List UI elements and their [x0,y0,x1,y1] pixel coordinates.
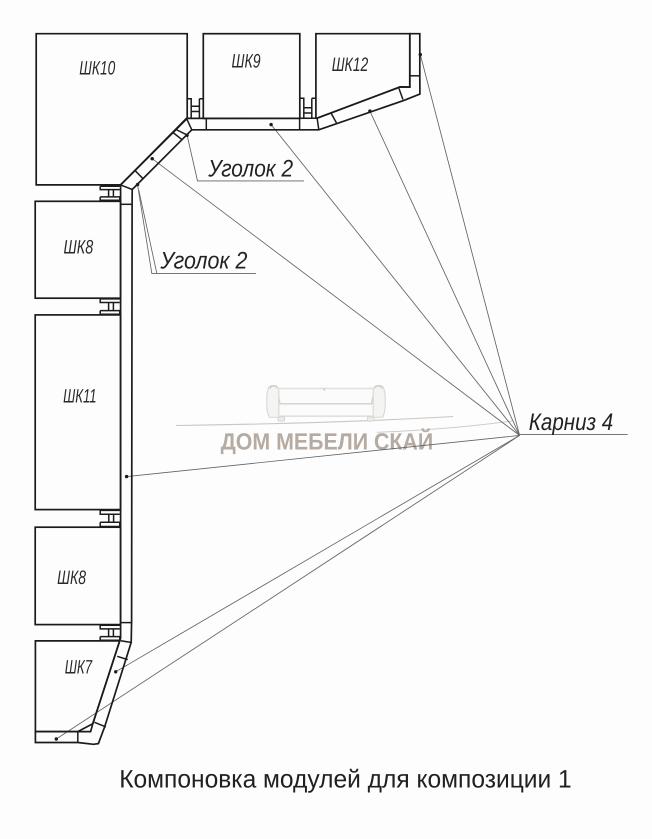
svg-text:ШК8: ШК8 [57,567,86,589]
svg-text:ШК9: ШК9 [232,50,261,72]
svg-text:Уголок 2: Уголок 2 [207,156,293,183]
svg-text:ШК10: ШК10 [79,58,115,80]
svg-text:Уголок 2: Уголок 2 [160,248,248,275]
svg-text:ШК8: ШК8 [64,237,94,259]
svg-text:ШК7: ШК7 [65,656,93,678]
svg-text:ШК12: ШК12 [332,54,369,76]
svg-text:Карниз 4: Карниз 4 [529,409,613,436]
svg-text:ШК11: ШК11 [63,386,97,408]
svg-text:ДОМ МЕБЕЛИ СКАЙ: ДОМ МЕБЕЛИ СКАЙ [221,427,434,454]
svg-text:Компоновка модулей для компози: Компоновка модулей для композиции 1 [119,765,572,793]
